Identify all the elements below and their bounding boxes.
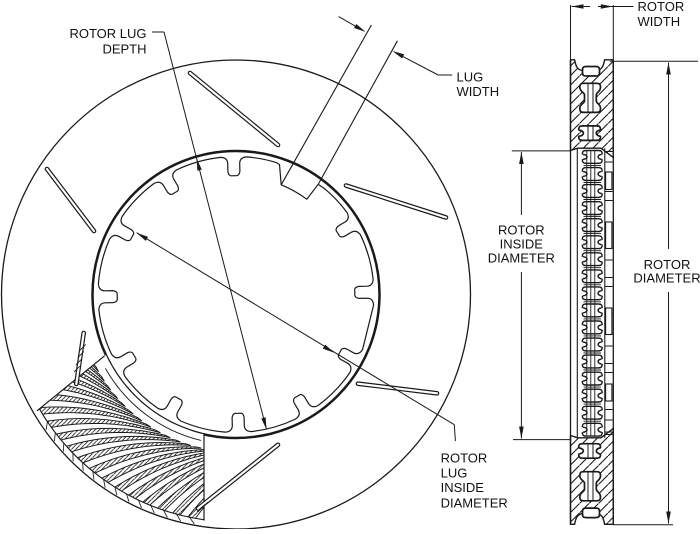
svg-text:ROTOR LUG: ROTOR LUG	[69, 26, 146, 41]
svg-text:ROTOR: ROTOR	[441, 450, 488, 465]
svg-text:DEPTH: DEPTH	[102, 42, 146, 57]
svg-text:LUG: LUG	[457, 69, 484, 84]
svg-text:DIAMETER: DIAMETER	[488, 250, 555, 265]
svg-text:INSIDE: INSIDE	[441, 480, 485, 495]
svg-text:WIDTH: WIDTH	[638, 14, 681, 29]
svg-text:DIAMETER: DIAMETER	[633, 271, 700, 286]
svg-text:LUG: LUG	[441, 465, 468, 480]
svg-text:INSIDE: INSIDE	[500, 236, 544, 251]
svg-text:ROTOR: ROTOR	[498, 222, 545, 237]
svg-text:ROTOR: ROTOR	[638, 0, 685, 14]
svg-text:DIAMETER: DIAMETER	[441, 495, 508, 510]
svg-text:WIDTH: WIDTH	[457, 84, 500, 99]
